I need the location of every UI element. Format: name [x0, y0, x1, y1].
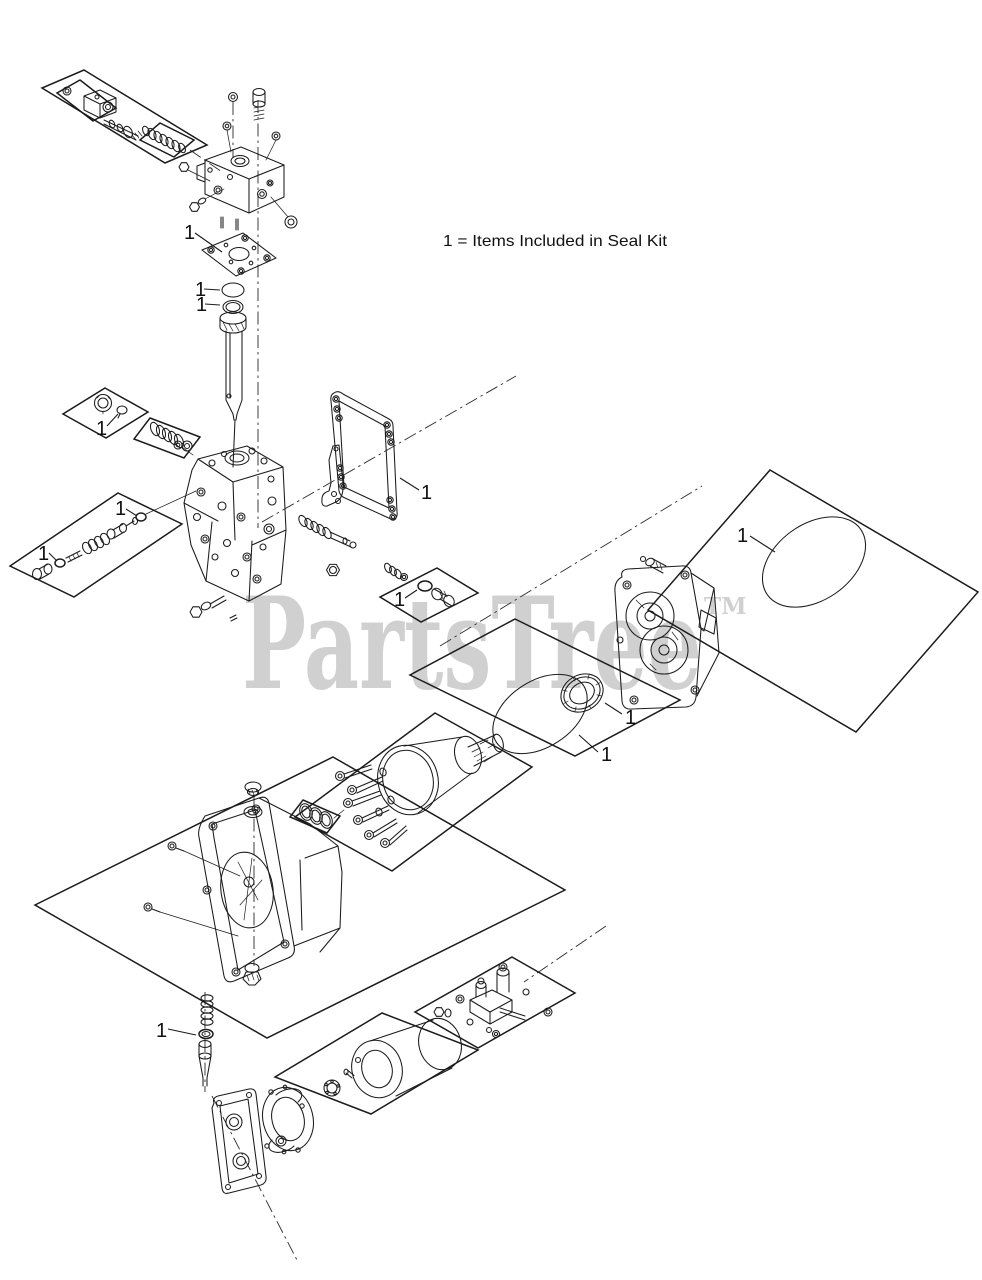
svg-text:1: 1	[421, 482, 432, 504]
callout-bypass-seal: 1	[156, 1020, 196, 1042]
callout-large-o-ring: 1	[737, 525, 775, 552]
callout-body-gasket: 1	[400, 478, 432, 504]
kit-box-spring	[134, 418, 200, 458]
end-plate-drawing	[212, 1089, 286, 1194]
manifold-kit-drawing	[434, 963, 552, 1038]
svg-text:1: 1	[196, 294, 207, 316]
o-ring-upper-drawing	[222, 283, 244, 297]
svg-text:1: 1	[625, 707, 636, 729]
svg-text:1: 1	[96, 418, 107, 440]
solenoid-valve-kit-drawing	[63, 87, 187, 154]
watermark-tm: TM	[704, 593, 747, 620]
seal-kit-legend: 1 = Items Included in Seal Kit	[443, 233, 668, 250]
svg-text:1: 1	[737, 525, 748, 547]
svg-text:1: 1	[394, 589, 405, 611]
kit-box-piston-block	[295, 713, 532, 871]
valve-plate-drawing	[256, 1082, 320, 1156]
svg-text:1: 1	[156, 1020, 167, 1042]
callout-cover-gasket: 1	[184, 222, 222, 252]
exploded-parts-diagram: PartsTree TM	[0, 0, 982, 1280]
parts-diagram-page: PartsTree TM	[0, 0, 982, 1280]
suction-tube-drawing	[220, 312, 246, 467]
callout-backup-ring: 1	[196, 294, 220, 316]
large-o-ring-drawing	[746, 498, 883, 626]
svg-text:1: 1	[38, 543, 49, 565]
cover-gasket-drawing	[202, 233, 276, 276]
valve-cover-assembly-drawing	[179, 89, 297, 231]
svg-text:1: 1	[115, 498, 126, 520]
svg-text:1: 1	[184, 222, 195, 244]
bypass-valve-drawing	[199, 995, 213, 1086]
svg-text:1: 1	[601, 744, 612, 766]
callout-plug-seat: 1	[96, 414, 118, 440]
callout-relief-o-ring-rear: 1	[38, 543, 57, 565]
cam-ring-drawing	[324, 1013, 467, 1104]
